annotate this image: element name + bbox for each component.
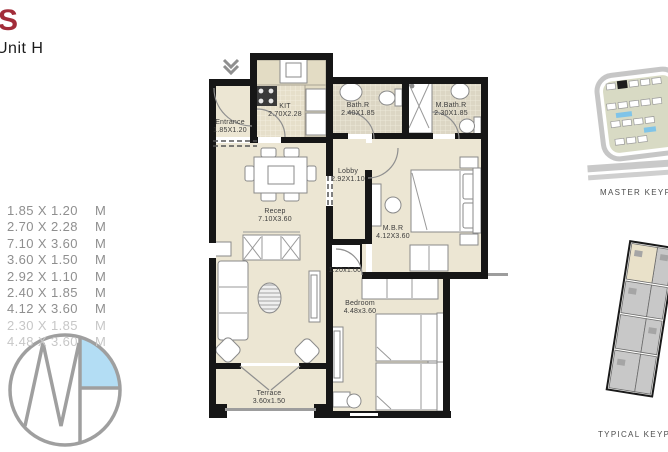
nightstand <box>460 234 478 245</box>
terrace-railing <box>225 408 316 411</box>
master-keyplan <box>587 67 668 180</box>
kitchen-cabinet <box>306 89 326 111</box>
room-label-bath: Bath.R2.40X1.85 <box>335 102 381 118</box>
window <box>350 413 378 416</box>
logo-mh-watermark <box>10 335 120 445</box>
highlighted-unit <box>626 243 657 283</box>
nightstand <box>460 157 478 168</box>
unit-label: Unit H <box>0 40 43 58</box>
dimension-row: 2.70 X 2.28M <box>7 219 106 235</box>
wardrobe <box>362 278 438 299</box>
typical-keyplan <box>607 241 668 396</box>
ledge <box>488 273 508 276</box>
stool <box>385 197 401 213</box>
room-label-kitchen: KIT2.70X2.28 <box>261 103 309 119</box>
entrance-arrow-icon <box>224 60 238 73</box>
sofa <box>218 261 248 340</box>
bath-sink <box>340 83 362 101</box>
room-label-terrace: Terrace3.60x1.50 <box>243 390 295 406</box>
master-bath-sink <box>451 83 469 99</box>
dimension-row: 4.12 X 3.60M <box>7 301 106 317</box>
master-keyplan-caption: MASTER KEYPLAN <box>600 188 668 197</box>
dimension-row: 2.92 X 1.10M <box>7 269 106 285</box>
single-bed <box>376 314 439 361</box>
bath-toilet <box>379 91 395 105</box>
dimensions-list: 1.85 X 1.20M 2.70 X 2.28M 7.10 X 3.60M 3… <box>7 203 106 351</box>
page-title-fragment: S <box>0 4 18 38</box>
side-table <box>214 242 231 256</box>
room-label-master-bath: M.Bath.R2.30X1.85 <box>426 102 476 118</box>
room-label-master-bedroom: M.B.R4.12X3.60 <box>368 225 418 241</box>
dimension-row: 2.40 X 1.85M <box>7 285 106 301</box>
typical-keyplan-caption: TYPICAL KEYPLAN <box>598 430 668 439</box>
single-bed <box>376 363 439 410</box>
master-bath-toilet <box>460 119 475 133</box>
highlighted-building <box>617 80 628 89</box>
coffee-table <box>258 283 281 313</box>
dimension-row: 3.60 X 1.50M <box>7 252 106 268</box>
main-road <box>587 158 668 180</box>
room-label-bedroom: Bedroom4.48x3.60 <box>334 300 386 316</box>
dimension-row: 2.30 X 1.85M <box>7 318 106 334</box>
kitchen-fridge <box>306 113 326 135</box>
dimension-row: 7.10 X 3.60M <box>7 236 106 252</box>
window <box>209 243 216 258</box>
floorplan-page: { "page": { "title_fragment": "S", "unit… <box>0 0 668 452</box>
dimension-row: 4.48 X 3.60M <box>7 334 106 350</box>
room-label-shaft: 1.20x1.00 <box>324 267 366 275</box>
shaft <box>331 244 361 268</box>
stool <box>347 394 361 408</box>
room-label-lobby: Lobby2.92X1.10 <box>326 168 370 184</box>
room-label-entrance: Entrance1.85X1.20 <box>207 119 253 135</box>
dimension-row: 1.85 X 1.20M <box>7 203 106 219</box>
room-label-reception: Recep7.10X3.60 <box>250 208 300 224</box>
